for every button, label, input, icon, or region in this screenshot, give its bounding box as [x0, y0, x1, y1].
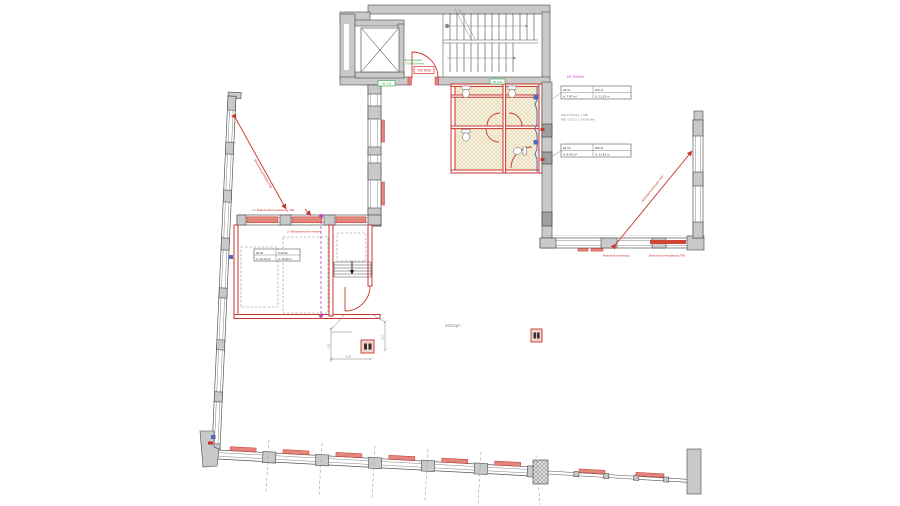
fire-leader-right	[616, 151, 692, 244]
dim-label: 1.32	[327, 343, 331, 349]
hall-area-label: 202sqm	[445, 323, 461, 328]
plumbing-valve-2	[534, 140, 539, 145]
glazing-right-label: Brandschutzverglasung F90	[649, 254, 685, 258]
wall-cavity	[344, 24, 349, 70]
tag-perimeter: U: 11.25 m	[595, 95, 610, 99]
mid-wall-green-note: UK 2.26	[382, 82, 392, 86]
radiator-mark	[382, 120, 385, 142]
diag-left-label: Brandschutzfenster F90	[253, 159, 273, 190]
hz-note: HZ 100mm	[567, 75, 584, 79]
hatched-column	[533, 460, 548, 484]
dim-label: 2.07	[381, 334, 385, 340]
tag-name: WC-D	[595, 146, 604, 150]
stair-top-wall	[368, 5, 550, 14]
wc-annotations: HZ 100mm 02.11 WC-H A: 7.87 m² U: 11.25 …	[552, 75, 631, 157]
room-tag-wc-h: 02.11 WC-H A: 7.87 m² U: 11.25 m	[561, 86, 631, 99]
curtain-label: Brandschutzvorhang	[603, 254, 630, 258]
room-left-wall	[234, 225, 238, 318]
right-exterior-wall	[693, 111, 703, 238]
radiator-mark	[382, 182, 385, 205]
hydrant-mark	[211, 435, 216, 439]
room-bottom-wall	[234, 315, 380, 319]
stair-door-note-line1: Brandschutztür	[405, 58, 423, 62]
tag-no: 02.01	[256, 251, 263, 255]
room-tag-wc-d: 02.12 WC-D A: 8.04 m² U: 11.52 m	[561, 144, 631, 157]
glazing-top-label: 2 x Brandschutzverglasung F90	[252, 208, 295, 212]
stair-fire-door: Brandschutztür T30-RS Element T30 RSS	[405, 52, 439, 85]
wc-right-shaft-wall	[541, 82, 553, 248]
bottom-wall-thin	[548, 467, 688, 483]
shaft-box-2	[531, 329, 542, 342]
fire-glazing-mark	[292, 217, 322, 223]
room-partition-wall	[329, 225, 333, 316]
stair-door-note-line2: T30-RS Element	[405, 62, 424, 66]
wall-note-line2: MB: 17/11,5 ü. OK Boden	[561, 118, 595, 122]
mid-vertical-wall: UK 2.26	[368, 81, 395, 227]
shaft-box-1	[361, 340, 374, 353]
wall-note-line1: Wand: Stärke n. MB	[561, 113, 588, 117]
tag-name: WC-H	[595, 88, 603, 92]
upper-right-wall: Brandschutzvorhang Brandschutzverglasung…	[540, 236, 704, 258]
plumbing-valve-1	[534, 95, 539, 100]
tag-no: 02.12	[563, 146, 571, 150]
dim-label: 1.65	[346, 355, 352, 359]
door-jamb-left	[408, 77, 412, 85]
stair-flights	[443, 9, 538, 77]
tag-name: Technik	[278, 251, 288, 255]
floor-plan-canvas: Brandschutztür T30-RS Element T30 RSS	[0, 0, 900, 506]
t30-tag-label: T30 RSS	[417, 69, 431, 73]
stair-right-wall	[542, 12, 550, 80]
fire-glazing-mark	[650, 240, 686, 244]
bottom-right-pier	[687, 449, 701, 494]
elevator-shaft-top-wall	[355, 20, 404, 26]
stairwell-block: Brandschutztür T30-RS Element T30 RSS	[340, 5, 550, 85]
nook-stair	[334, 233, 371, 277]
tag-perimeter: U: 11.52 m	[595, 153, 610, 157]
room-tag-technik: 02.01 Technik A: 22.10 m² U: 19.20 m	[254, 249, 300, 261]
wc-block: UK 2.10	[451, 79, 543, 173]
tag-perimeter: U: 19.20 m	[278, 257, 292, 261]
tag-no: 02.11	[563, 88, 571, 92]
nook-door-arc	[345, 286, 370, 311]
tag-area: A: 8.04 m²	[563, 153, 577, 157]
floor-plan-page: Brandschutztür T30-RS Element T30 RSS	[0, 0, 900, 506]
tag-area: A: 7.87 m²	[563, 95, 577, 99]
hydrant-mark	[229, 255, 234, 259]
fire-glazing-mark	[336, 217, 366, 223]
left-room: 02.01 Technik A: 22.10 m² U: 19.20 m	[234, 214, 381, 319]
fire-glazing-mark	[247, 217, 278, 223]
elevator-shaft-bottom-wall	[355, 72, 404, 78]
door-jamb-right	[435, 77, 439, 85]
dimension-lines: 1.32 1.65 2.07	[327, 314, 387, 362]
bestand-label: 2 x Bestandsfenster erhalten	[287, 230, 322, 234]
red-mark	[208, 442, 213, 445]
wc-green-note: UK 2.10	[493, 80, 503, 84]
tag-area: A: 22.10 m²	[256, 257, 271, 261]
fire-leader-left	[236, 119, 286, 209]
